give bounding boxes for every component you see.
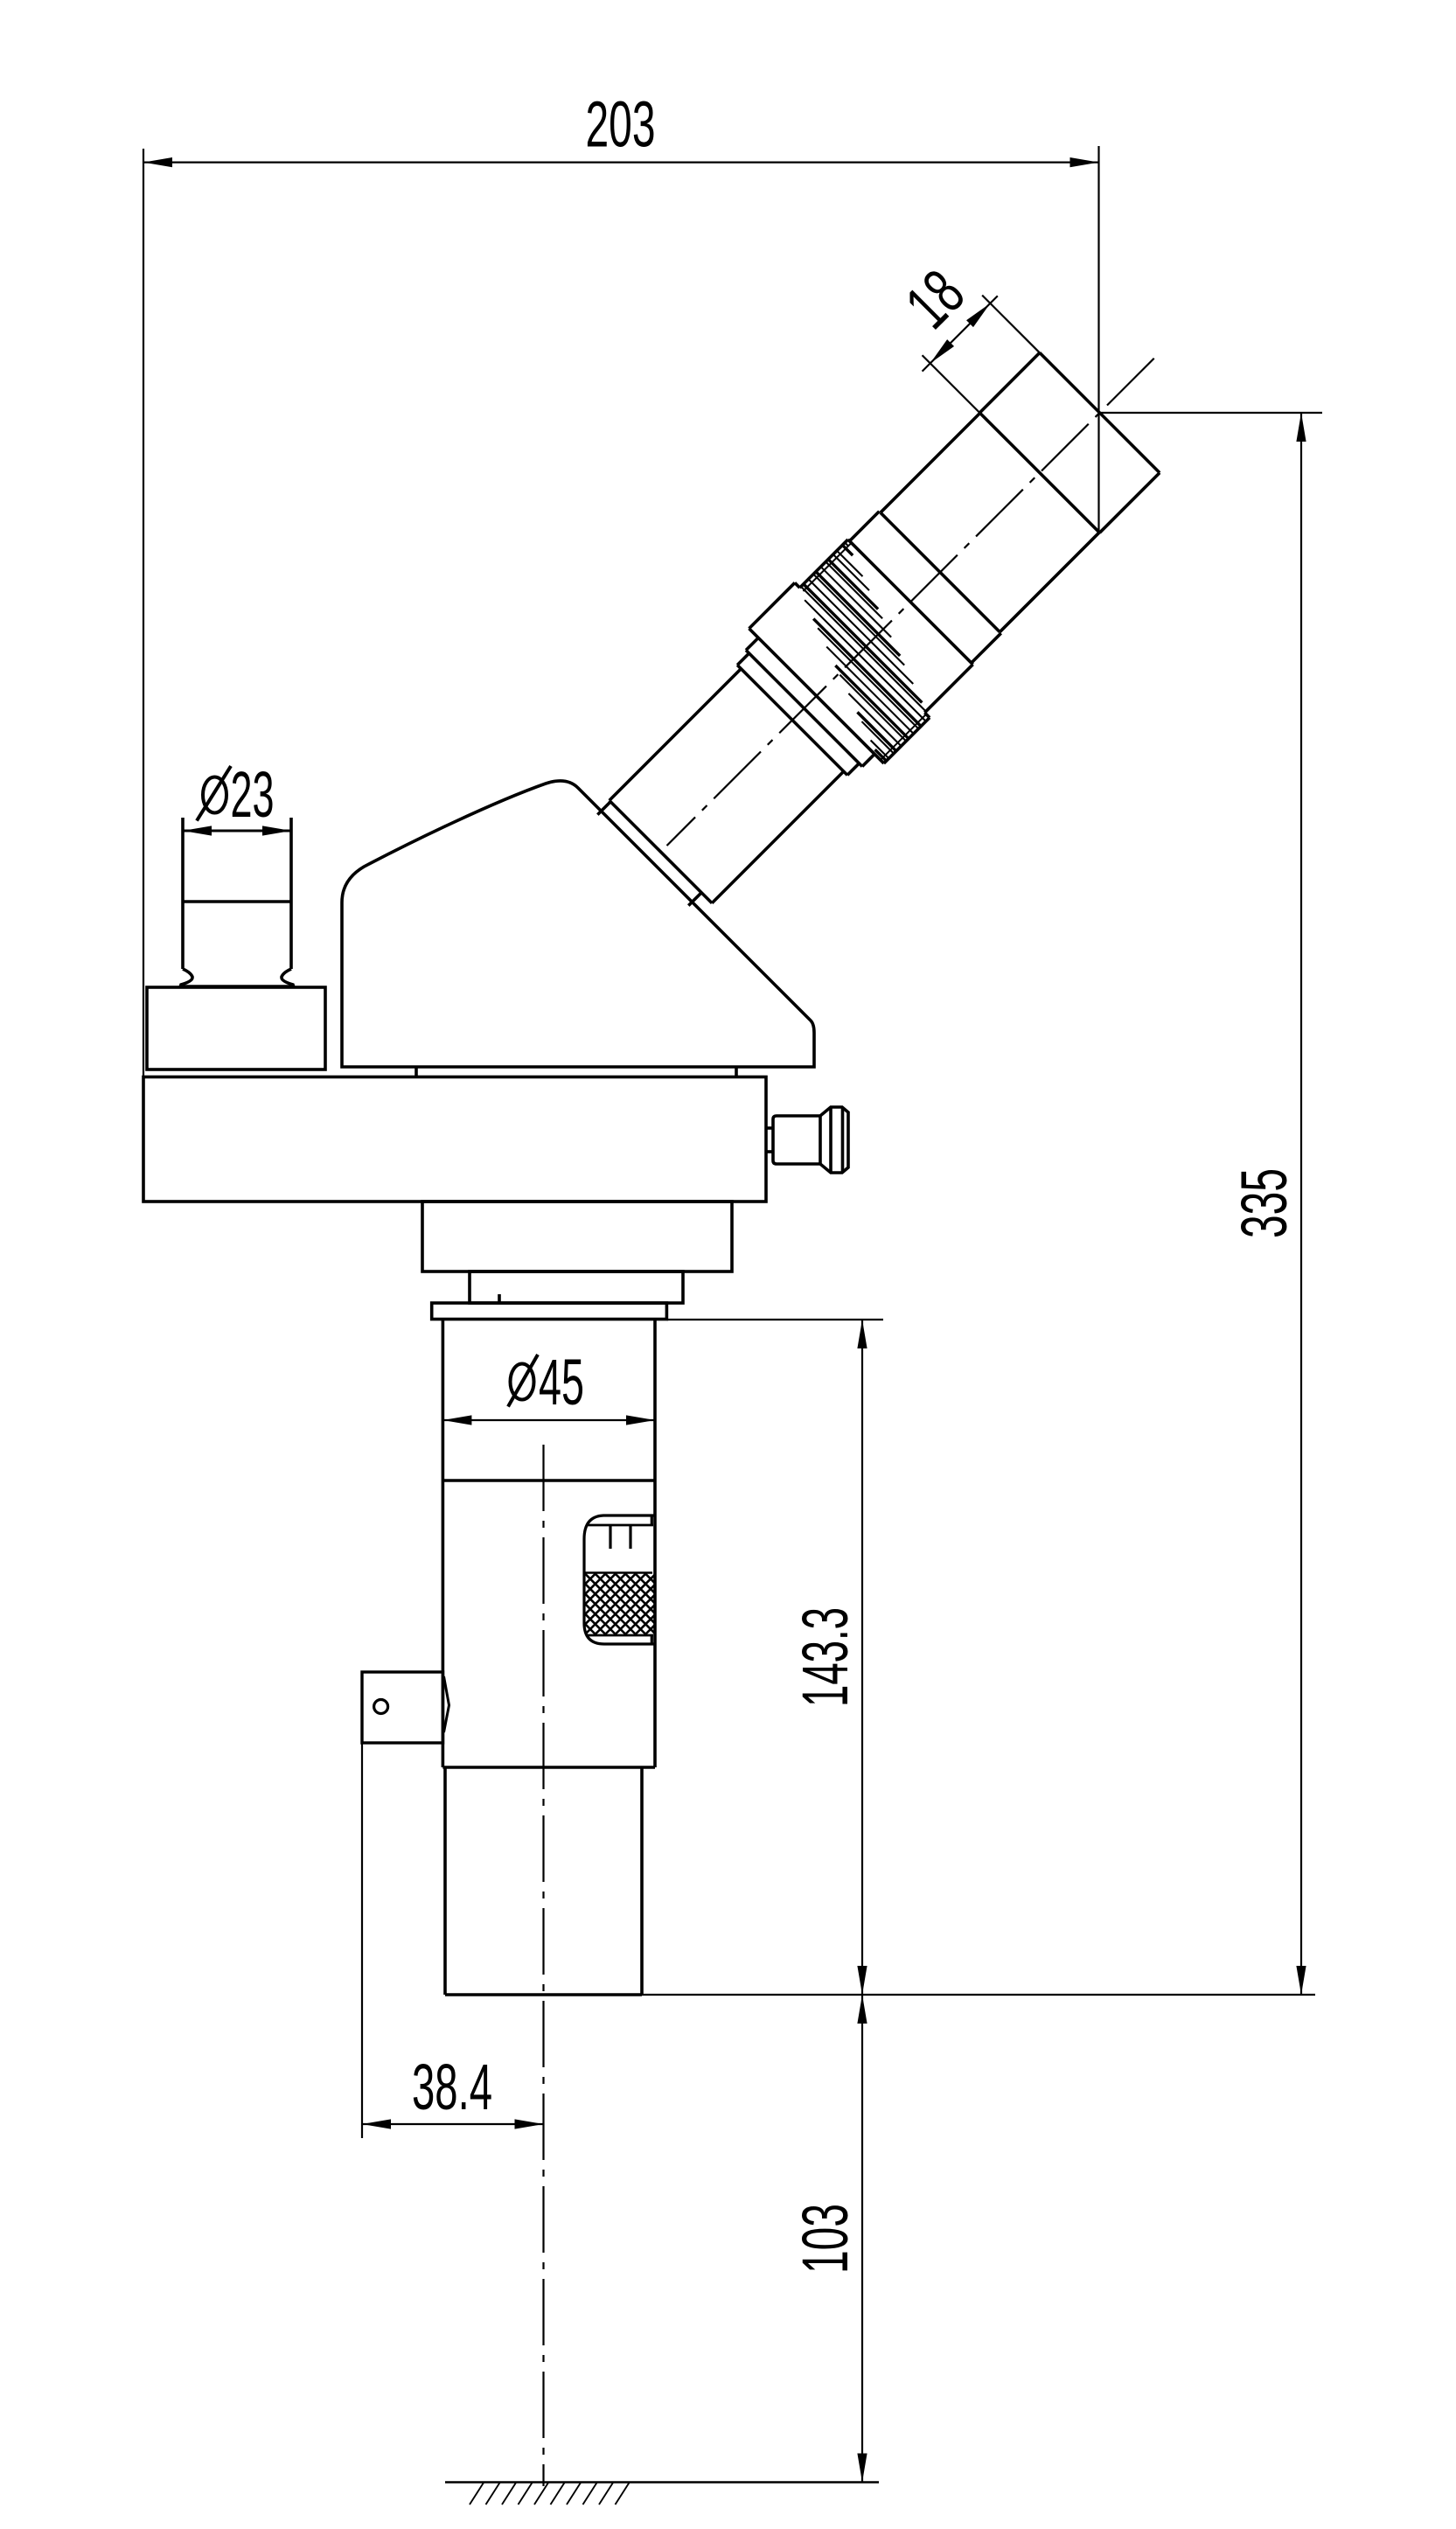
svg-text:103: 103 [789,2204,861,2274]
svg-text:203: 203 [586,88,656,161]
svg-text:143.3: 143.3 [789,1607,861,1707]
svg-text:23: 23 [231,758,275,831]
svg-text:335: 335 [1228,1168,1300,1238]
svg-text:38.4: 38.4 [412,2051,492,2123]
svg-text:45: 45 [539,1346,584,1418]
